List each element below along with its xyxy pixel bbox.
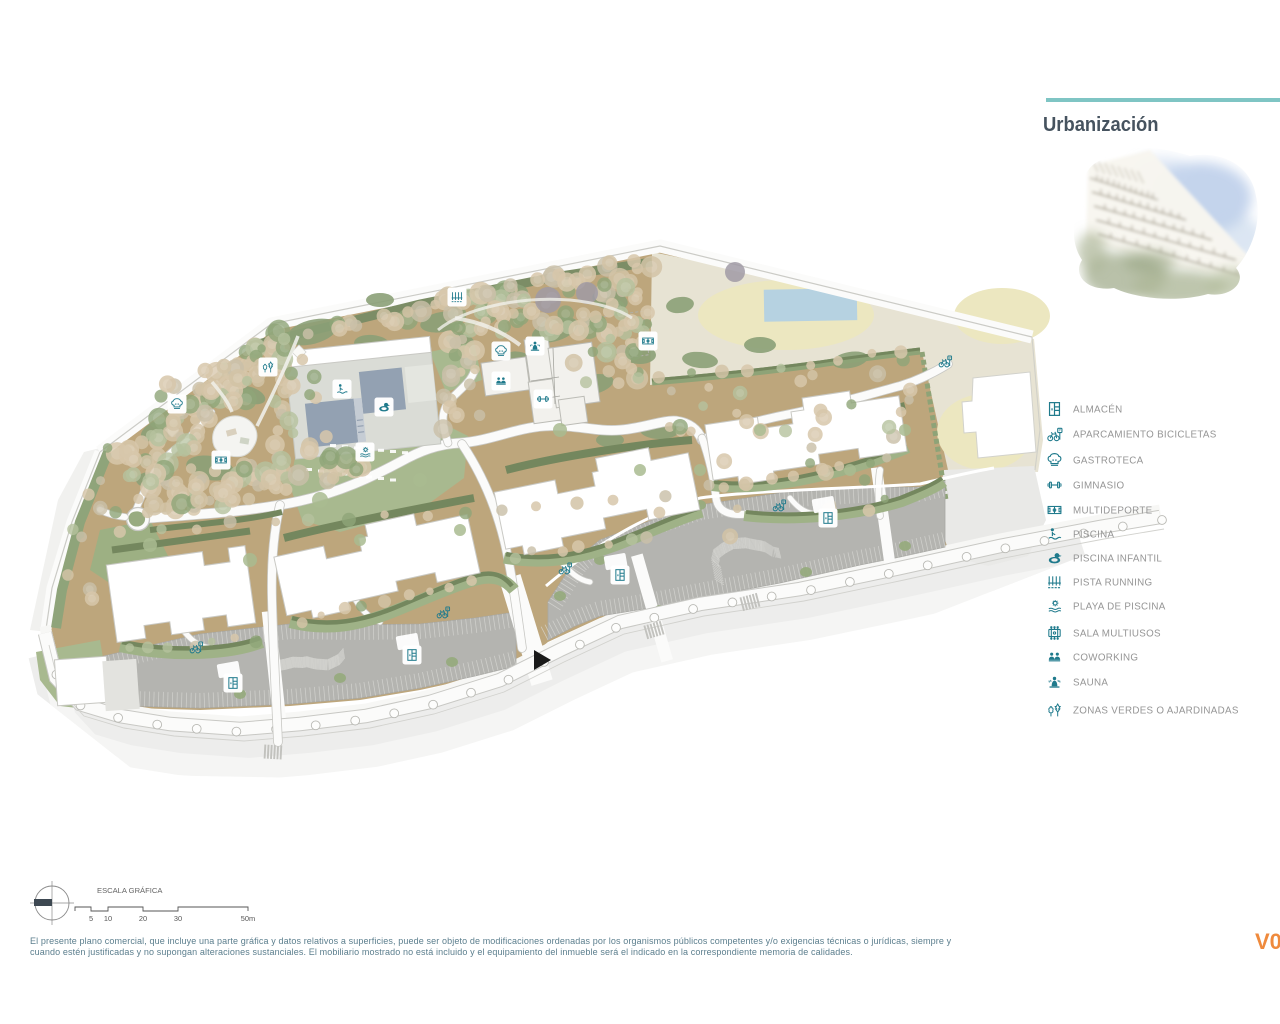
svg-text:MULTIDEPORTE: MULTIDEPORTE (1073, 506, 1153, 517)
svg-text:SALA MULTIUSOS: SALA MULTIUSOS (1073, 629, 1161, 640)
svg-text:PISCINA INFANTIL: PISCINA INFANTIL (1073, 554, 1162, 565)
svg-text:PISCINA: PISCINA (1073, 530, 1114, 541)
svg-text:30: 30 (174, 914, 182, 923)
svg-text:GASTROTECA: GASTROTECA (1073, 456, 1144, 467)
svg-text:APARCAMIENTO BICICLETAS: APARCAMIENTO BICICLETAS (1073, 430, 1217, 441)
svg-text:SAUNA: SAUNA (1073, 678, 1108, 689)
svg-text:GIMNASIO: GIMNASIO (1073, 481, 1124, 492)
svg-text:ALMACÉN: ALMACÉN (1073, 405, 1122, 416)
svg-text:ESCALA GRÁFICA: ESCALA GRÁFICA (97, 886, 163, 895)
svg-text:50m: 50m (241, 914, 255, 923)
svg-text:ZONAS VERDES O AJARDINADAS: ZONAS VERDES O AJARDINADAS (1073, 706, 1239, 717)
svg-text:COWORKING: COWORKING (1073, 653, 1138, 664)
svg-text:PLAYA DE PISCINA: PLAYA DE PISCINA (1073, 602, 1166, 613)
svg-text:10: 10 (104, 914, 112, 923)
svg-text:PISTA RUNNING: PISTA RUNNING (1073, 578, 1152, 589)
svg-text:20: 20 (139, 914, 147, 923)
svg-text:5: 5 (89, 914, 93, 923)
